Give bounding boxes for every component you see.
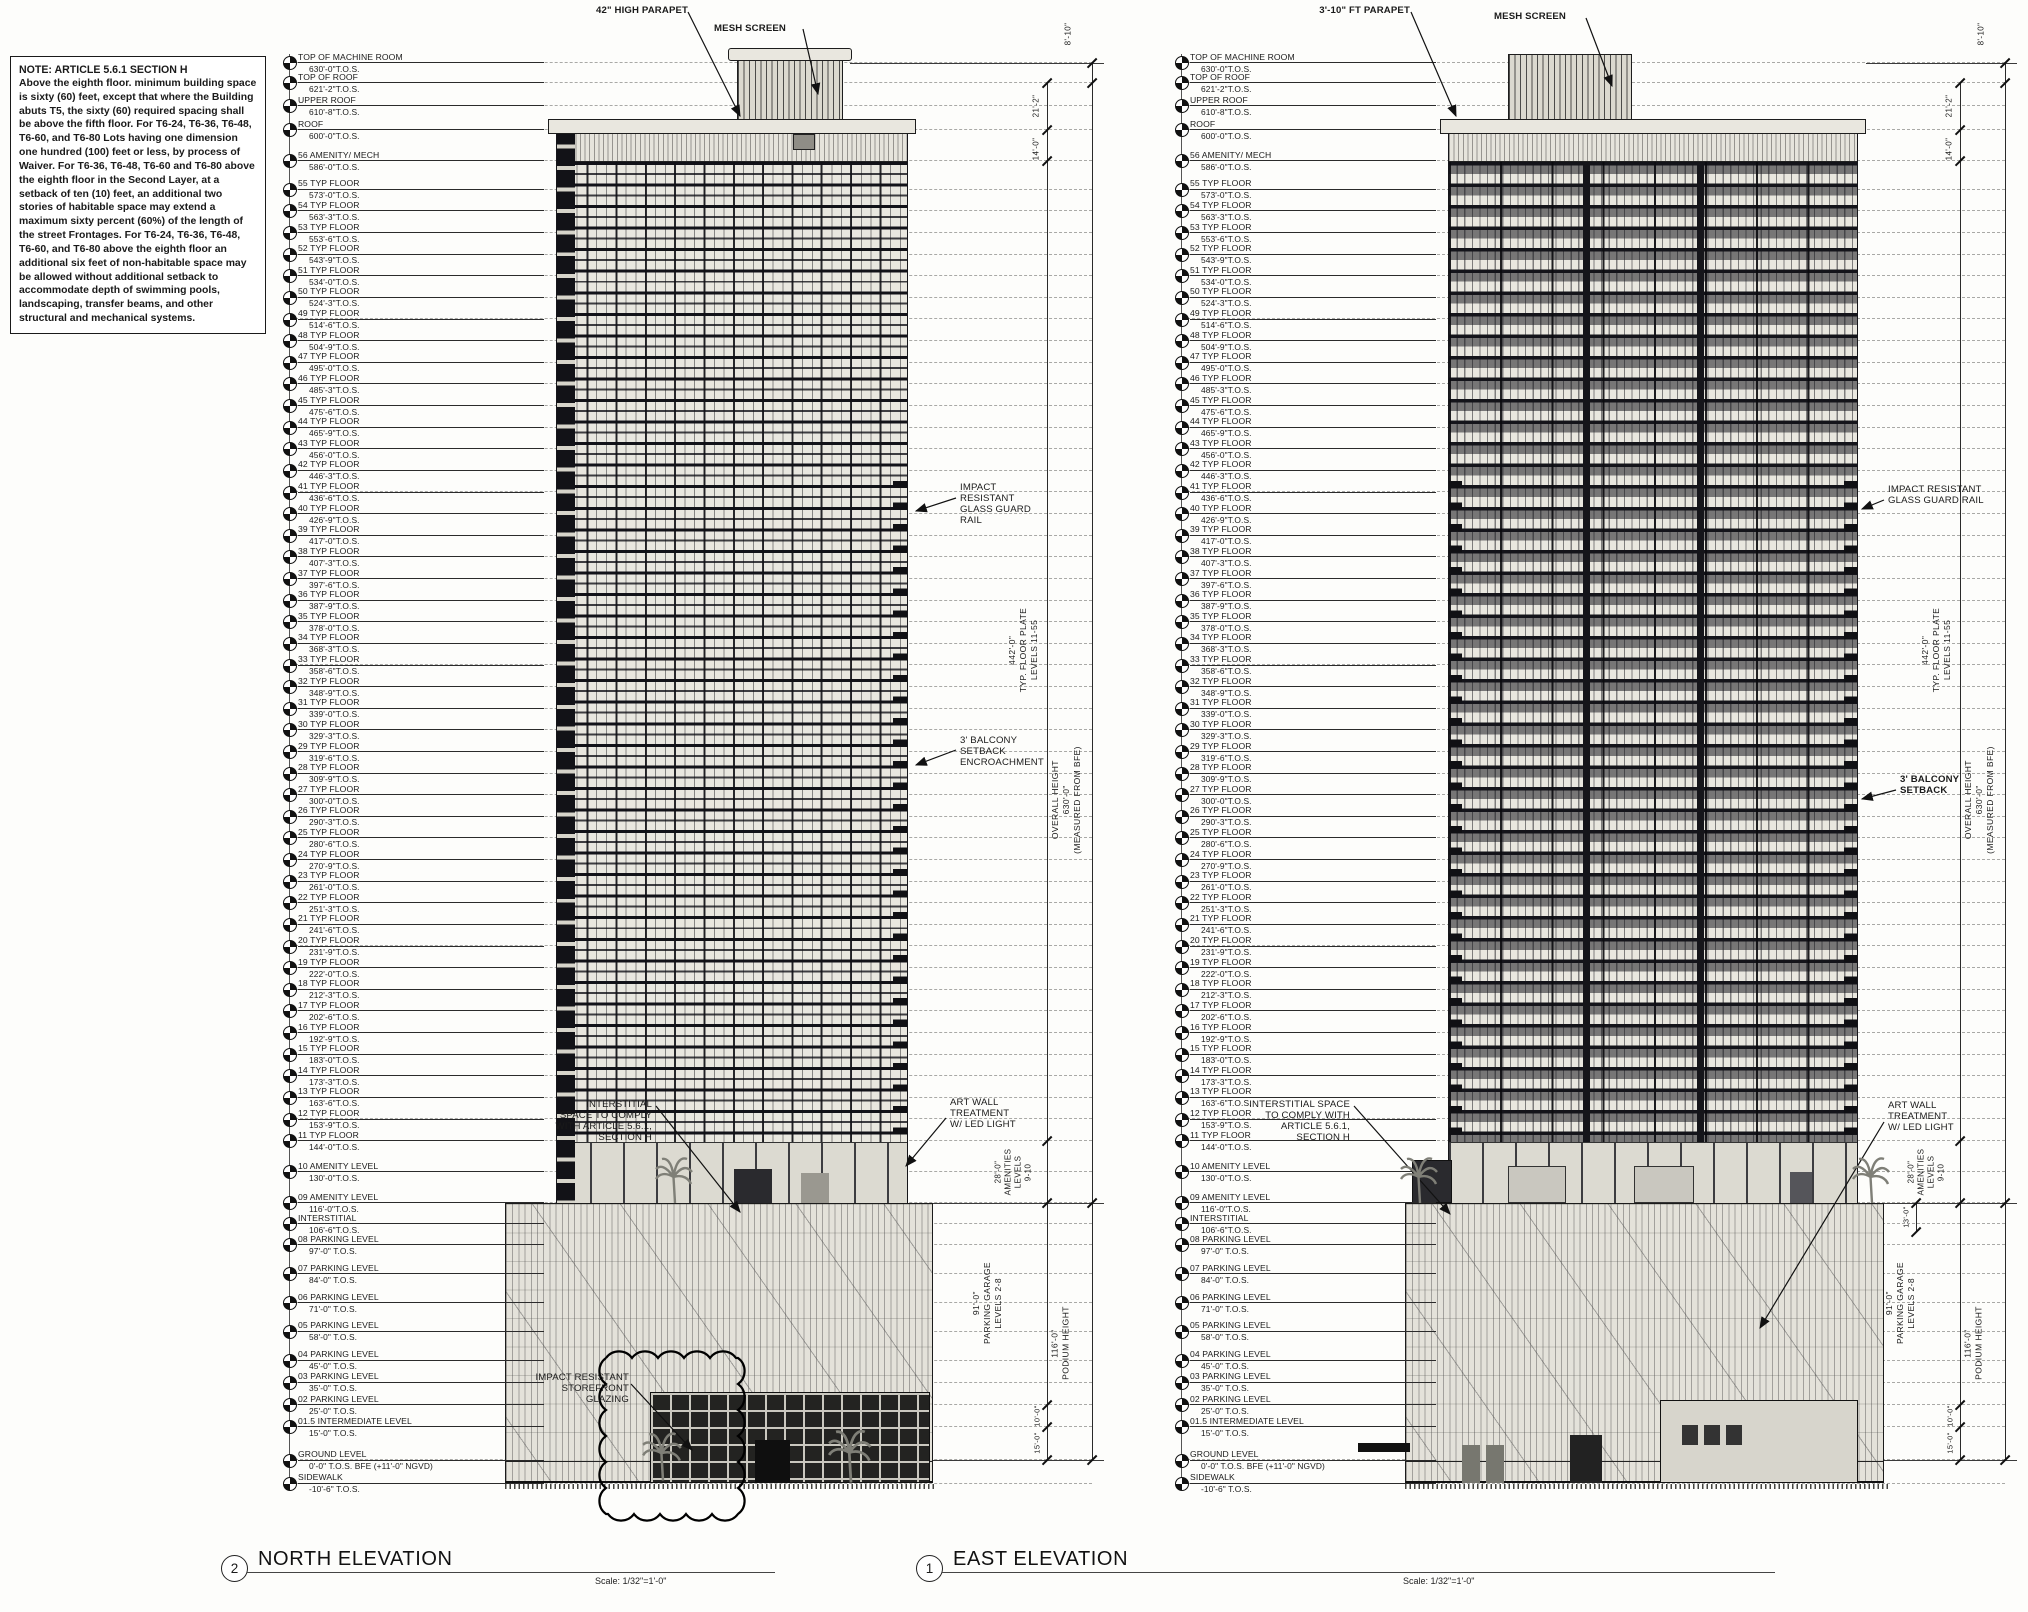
level-datum-icon — [1175, 810, 1189, 824]
north-mech-level — [557, 131, 907, 162]
annotation-east-art-wall: ART WALL TREATMENT W/ LED LIGHT — [1888, 1100, 1954, 1133]
level-row-north: TOP OF ROOF621'-2"T.O.S. — [283, 69, 553, 95]
dimension-text-block: 28'-0"AMENITIESLEVELS9-10 — [1907, 1149, 1946, 1196]
level-datum-icon — [283, 550, 297, 564]
dimension-text: LEVELS — [1927, 1156, 1936, 1189]
dimension-text: 9-10 — [1024, 1163, 1033, 1181]
level-datum-icon — [283, 637, 297, 651]
level-datum-icon — [1175, 1238, 1189, 1252]
level-name: 21 TYP FLOOR — [298, 913, 360, 923]
dimension-text: 8'-10" — [1977, 23, 1986, 46]
level-datum-icon — [1175, 334, 1189, 348]
level-datum-icon — [283, 99, 297, 113]
level-datum-icon — [1175, 399, 1189, 413]
north-entry-door — [755, 1440, 790, 1483]
level-row-north: ROOF600'-0"T.O.S. — [283, 116, 553, 142]
dimension-text-block: 28'-0"AMENITIESLEVELS9-10 — [994, 1149, 1033, 1196]
level-name: 13 TYP FLOOR — [1190, 1086, 1252, 1096]
dimension-text: TYP. FLOOR PLATE — [1018, 608, 1028, 693]
level-datum-icon — [1175, 550, 1189, 564]
level-name: 14 TYP FLOOR — [1190, 1065, 1252, 1075]
level-name: 37 TYP FLOOR — [1190, 568, 1252, 578]
level-name: 04 PARKING LEVEL — [298, 1349, 379, 1359]
level-name: TOP OF ROOF — [298, 72, 358, 82]
level-datum-icon — [1175, 572, 1189, 586]
level-name: 46 TYP FLOOR — [298, 373, 360, 383]
level-datum-icon — [1175, 291, 1189, 305]
level-datum-icon — [283, 659, 297, 673]
north-roof-slab — [548, 119, 916, 134]
level-datum-icon — [1175, 940, 1189, 954]
level-datum-icon — [283, 313, 297, 327]
level-name: 09 AMENITY LEVEL — [298, 1192, 378, 1202]
dimension-text: AMENITIES — [1004, 1149, 1013, 1196]
level-datum-icon — [1175, 1165, 1189, 1179]
level-datum-icon — [1175, 875, 1189, 889]
dimension-text: PARKING GARAGE — [1895, 1262, 1905, 1344]
level-datum-icon — [283, 1477, 297, 1491]
level-row-north: GROUND LEVEL0'-0" T.O.S. BFE (+11'-0" NG… — [283, 1446, 553, 1472]
leader-line — [916, 750, 956, 765]
level-name: 16 TYP FLOOR — [298, 1022, 360, 1032]
level-datum-icon — [1175, 1398, 1189, 1412]
level-name: 20 TYP FLOOR — [298, 935, 360, 945]
level-datum-icon — [1175, 918, 1189, 932]
level-elevation: 144'-0"T.O.S. — [309, 1142, 360, 1152]
north-elevation-title: NORTH ELEVATION — [258, 1548, 453, 1571]
level-datum-icon — [1175, 269, 1189, 283]
level-row-east: 10 AMENITY LEVEL130'-0"T.O.S. — [1175, 1158, 1445, 1184]
level-name: 53 TYP FLOOR — [298, 222, 360, 232]
level-name: 29 TYP FLOOR — [1190, 741, 1252, 751]
level-datum-icon — [1175, 1325, 1189, 1339]
level-datum-icon — [1175, 226, 1189, 240]
level-row-east: 01.5 INTERMEDIATE LEVEL15'-0" T.O.S. — [1175, 1413, 1445, 1439]
dimension-text: 21'-2" — [1032, 95, 1041, 118]
east-balcony-edge-left — [1449, 481, 1462, 1142]
level-name: 22 TYP FLOOR — [298, 892, 360, 902]
level-name: 31 TYP FLOOR — [298, 697, 360, 707]
level-name: 44 TYP FLOOR — [298, 416, 360, 426]
level-name: 35 TYP FLOOR — [298, 611, 360, 621]
level-name: 08 PARKING LEVEL — [298, 1234, 379, 1244]
level-name: INTERSTITIAL — [298, 1213, 357, 1223]
level-datum-icon — [1175, 767, 1189, 781]
east-roof-amenity-box — [1508, 1166, 1566, 1203]
level-datum-icon — [283, 1134, 297, 1148]
level-datum-icon — [283, 918, 297, 932]
level-datum-icon — [283, 1267, 297, 1281]
level-name: 06 PARKING LEVEL — [298, 1292, 379, 1302]
east-entry — [1570, 1435, 1602, 1483]
north-sidewalk-hatch — [505, 1484, 937, 1489]
dimension-text-block: 15'-0" — [1033, 1433, 1042, 1455]
level-name: 51 TYP FLOOR — [298, 265, 360, 275]
level-row-east: 05 PARKING LEVEL58'-0" T.O.S. — [1175, 1317, 1445, 1343]
east-facade-grid — [1449, 162, 1857, 1142]
level-name: INTERSTITIAL — [1190, 1213, 1249, 1223]
level-name: 25 TYP FLOOR — [298, 827, 360, 837]
level-datum-icon — [1175, 1454, 1189, 1468]
level-elevation: 130'-0"T.O.S. — [1201, 1173, 1252, 1183]
level-name: 33 TYP FLOOR — [1190, 654, 1252, 664]
dimension-text: 28'-0" — [994, 1161, 1003, 1184]
dimension-text: PODIUM HEIGHT — [1061, 1306, 1071, 1380]
level-datum-icon — [1175, 723, 1189, 737]
level-datum-icon — [283, 983, 297, 997]
level-datum-icon — [1175, 853, 1189, 867]
level-datum-icon — [1175, 1004, 1189, 1018]
level-row-east: 06 PARKING LEVEL71'-0" T.O.S. — [1175, 1289, 1445, 1315]
level-name: 24 TYP FLOOR — [1190, 849, 1252, 859]
east-door — [1462, 1445, 1480, 1483]
level-datum-icon — [1175, 464, 1189, 478]
level-datum-icon — [1175, 745, 1189, 759]
level-datum-icon — [283, 269, 297, 283]
north-storefront — [650, 1392, 930, 1483]
level-datum-icon — [283, 875, 297, 889]
dimension-text: 442'-0" — [1920, 635, 1930, 664]
note-title: NOTE: ARTICLE 5.6.1 SECTION H — [19, 64, 257, 76]
level-datum-icon — [283, 702, 297, 716]
level-datum-icon — [283, 486, 297, 500]
level-name: 24 TYP FLOOR — [298, 849, 360, 859]
extension-line — [1884, 1460, 2017, 1461]
level-elevation: 144'-0"T.O.S. — [1201, 1142, 1252, 1152]
level-datum-icon — [1175, 615, 1189, 629]
level-name: 23 TYP FLOOR — [1190, 870, 1252, 880]
leader-line — [906, 1118, 946, 1166]
level-datum-icon — [283, 940, 297, 954]
level-name: 27 TYP FLOOR — [298, 784, 360, 794]
extension-line — [1884, 1203, 2017, 1204]
level-datum-icon — [1175, 680, 1189, 694]
east-facade-mullion-strip — [1583, 162, 1590, 1142]
outer-dimension-line — [2005, 63, 2006, 1460]
north-facade-grid — [557, 162, 907, 1142]
dimension-text: 15'-0" — [1033, 1433, 1042, 1455]
level-row-east: 56 AMENITY/ MECH586'-0"T.O.S. — [1175, 147, 1445, 173]
level-row-north: 07 PARKING LEVEL84'-0" T.O.S. — [283, 1260, 553, 1286]
dimension-text: LEVELS 11-55 — [1942, 620, 1952, 680]
extension-line — [933, 1460, 1104, 1461]
level-name: 35 TYP FLOOR — [1190, 611, 1252, 621]
level-name: 31 TYP FLOOR — [1190, 697, 1252, 707]
level-name: 50 TYP FLOOR — [1190, 286, 1252, 296]
level-datum-icon — [283, 1069, 297, 1083]
level-name: 41 TYP FLOOR — [298, 481, 360, 491]
dimension-text: 13'-0" — [1902, 1206, 1911, 1228]
dimension-text: 9-10 — [1937, 1163, 1946, 1181]
dimension-text: PODIUM HEIGHT — [1974, 1306, 1984, 1380]
level-name: 56 AMENITY/ MECH — [1190, 150, 1271, 160]
level-datum-icon — [1175, 507, 1189, 521]
level-name: 48 TYP FLOOR — [1190, 330, 1252, 340]
dimension-text-block: 8'-10" — [1977, 23, 1986, 46]
level-name: GROUND LEVEL — [1190, 1449, 1259, 1459]
level-name: 33 TYP FLOOR — [298, 654, 360, 664]
level-row-north: 10 AMENITY LEVEL130'-0"T.O.S. — [283, 1158, 553, 1184]
north-roof-access — [793, 134, 815, 150]
level-datum-icon — [1175, 831, 1189, 845]
palm-tree — [1853, 1158, 1889, 1203]
east-window-box — [1704, 1425, 1720, 1445]
level-datum-icon — [1175, 1026, 1189, 1040]
dimension-text: 116'-0" — [1963, 1329, 1973, 1358]
dimension-text: 8'-10" — [1064, 23, 1073, 46]
annotation-north-parapet: 42" HIGH PARAPET — [596, 5, 688, 16]
level-name: 38 TYP FLOOR — [298, 546, 360, 556]
level-datum-icon — [1175, 1134, 1189, 1148]
level-datum-icon — [1175, 961, 1189, 975]
level-name: 10 AMENITY LEVEL — [1190, 1161, 1270, 1171]
level-name: TOP OF ROOF — [1190, 72, 1250, 82]
level-name: 42 TYP FLOOR — [1190, 459, 1252, 469]
level-datum-icon — [283, 1376, 297, 1390]
dimension-text: LEVELS 11-55 — [1029, 620, 1039, 680]
level-row-north: 05 PARKING LEVEL58'-0" T.O.S. — [283, 1317, 553, 1343]
level-datum-icon — [283, 399, 297, 413]
level-name: 20 TYP FLOOR — [1190, 935, 1252, 945]
level-datum-icon — [1175, 1376, 1189, 1390]
dimension-text: OVERALL HEIGHT — [1050, 761, 1060, 840]
annotation-north-glass-guard-rail: IMPACT RESISTANT GLASS GUARD RAIL — [960, 482, 1031, 526]
east-sidewalk-hatch — [1405, 1484, 1888, 1489]
level-datum-icon — [283, 1004, 297, 1018]
level-datum-icon — [283, 464, 297, 478]
level-row-north: 01.5 INTERMEDIATE LEVEL15'-0" T.O.S. — [283, 1413, 553, 1439]
annotation-north-balcony-setback: 3' BALCONY SETBACK ENCROACHMENT — [960, 735, 1044, 768]
level-datum-icon — [283, 377, 297, 391]
level-name: 01.5 INTERMEDIATE LEVEL — [1190, 1416, 1304, 1426]
level-datum-icon — [283, 961, 297, 975]
level-row-east: SIDEWALK-10'-6" T.O.S. — [1175, 1469, 1445, 1495]
level-name: 05 PARKING LEVEL — [1190, 1320, 1271, 1330]
east-scale-text: Scale: 1/32"=1'-0" — [1403, 1576, 1474, 1586]
level-datum-icon — [1175, 99, 1189, 113]
level-datum-icon — [283, 1325, 297, 1339]
level-name: 02 PARKING LEVEL — [298, 1394, 379, 1404]
level-name: 44 TYP FLOOR — [1190, 416, 1252, 426]
dimension-text: 14'-0" — [1032, 138, 1041, 161]
level-datum-icon — [283, 248, 297, 262]
level-datum-icon — [1175, 486, 1189, 500]
east-elevation-title: EAST ELEVATION — [953, 1548, 1128, 1571]
annotation-north-art-wall: ART WALL TREATMENT W/ LED LIGHT — [950, 1097, 1016, 1130]
level-datum-icon — [1175, 313, 1189, 327]
east-balcony-edge-right — [1844, 481, 1857, 1142]
dimension-text: TYP. FLOOR PLATE — [1931, 608, 1941, 693]
level-name: TOP OF MACHINE ROOM — [1190, 52, 1295, 62]
small-dimension-line — [1916, 1203, 1917, 1232]
level-name: 17 TYP FLOOR — [298, 1000, 360, 1010]
dimension-text-block: 10'-0" — [1033, 1405, 1042, 1427]
level-datum-icon — [283, 745, 297, 759]
level-datum-icon — [283, 723, 297, 737]
level-datum-icon — [1175, 1196, 1189, 1210]
level-datum-icon — [1175, 1267, 1189, 1281]
level-row-east: TOP OF ROOF621'-2"T.O.S. — [1175, 69, 1445, 95]
level-name: 28 TYP FLOOR — [1190, 762, 1252, 772]
level-name: 15 TYP FLOOR — [298, 1043, 360, 1053]
level-elevation: 97'-0" T.O.S. — [309, 1246, 357, 1256]
east-detail-number: 1 — [916, 1555, 943, 1582]
level-datum-icon — [1175, 248, 1189, 262]
dimension-text-block: 21'-2" — [1945, 95, 1954, 118]
dimension-text: OVERALL HEIGHT — [1963, 761, 1973, 840]
dimension-text: 91'-0" — [971, 1291, 981, 1315]
level-datum-icon — [1175, 442, 1189, 456]
level-elevation: 586'-0"T.O.S. — [1201, 162, 1252, 172]
east-window-box — [1682, 1425, 1698, 1445]
level-name: 34 TYP FLOOR — [298, 632, 360, 642]
level-name: SIDEWALK — [298, 1472, 343, 1482]
level-name: 54 TYP FLOOR — [1190, 200, 1252, 210]
north-amenity-box — [734, 1169, 772, 1204]
level-datum-icon — [283, 1238, 297, 1252]
level-name: 36 TYP FLOOR — [298, 589, 360, 599]
level-datum-icon — [1175, 76, 1189, 90]
east-mesh-screen — [1508, 54, 1632, 120]
dimension-text: (MEASURED FROM BFE) — [1072, 746, 1082, 854]
level-name: 30 TYP FLOOR — [1190, 719, 1252, 729]
level-name: 41 TYP FLOOR — [1190, 481, 1252, 491]
dimension-text: 10'-0" — [1946, 1405, 1955, 1427]
level-datum-icon — [1175, 183, 1189, 197]
north-machine-room-mesh — [737, 58, 843, 120]
level-elevation: 15'-0" T.O.S. — [1201, 1428, 1249, 1438]
level-name: 49 TYP FLOOR — [1190, 308, 1252, 318]
east-facade-mullion-strip — [1697, 162, 1704, 1142]
level-elevation: 58'-0" T.O.S. — [309, 1332, 357, 1342]
leader-line — [1862, 500, 1884, 509]
level-datum-icon — [1175, 204, 1189, 218]
dimension-text: PARKING GARAGE — [982, 1262, 992, 1344]
level-name: 07 PARKING LEVEL — [298, 1263, 379, 1273]
north-amenity-box — [801, 1173, 829, 1204]
level-elevation: 84'-0" T.O.S. — [309, 1275, 357, 1285]
level-name: 32 TYP FLOOR — [1190, 676, 1252, 686]
level-name: 45 TYP FLOOR — [298, 395, 360, 405]
level-datum-icon — [1175, 1420, 1189, 1434]
level-name: 02 PARKING LEVEL — [1190, 1394, 1271, 1404]
level-elevation: 586'-0"T.O.S. — [309, 162, 360, 172]
level-datum-icon — [283, 183, 297, 197]
level-elevation: 71'-0" T.O.S. — [309, 1304, 357, 1314]
level-name: 40 TYP FLOOR — [1190, 503, 1252, 513]
level-elevation: 600'-0"T.O.S. — [1201, 131, 1252, 141]
level-name: 43 TYP FLOOR — [298, 438, 360, 448]
level-datum-icon — [283, 123, 297, 137]
level-datum-icon — [1175, 594, 1189, 608]
level-name: 38 TYP FLOOR — [1190, 546, 1252, 556]
annotation-east-glass-guard-rail: IMPACT RESISTANT GLASS GUARD RAIL — [1888, 484, 1984, 506]
east-roof-amenity-box — [1790, 1172, 1812, 1203]
annotation-east-balcony-setback: 3' BALCONY SETBACK — [1900, 774, 1959, 796]
level-name: 04 PARKING LEVEL — [1190, 1349, 1271, 1359]
level-datum-icon — [283, 680, 297, 694]
level-row-north: 08 PARKING LEVEL97'-0" T.O.S. — [283, 1231, 553, 1257]
dimension-text-block: OVERALL HEIGHT630'-0"(MEASURED FROM BFE) — [1963, 746, 1995, 854]
dimension-text-block: 15'-0" — [1946, 1433, 1955, 1455]
level-name: UPPER ROOF — [298, 95, 356, 105]
north-parapet-cap — [728, 48, 852, 61]
level-datum-icon — [283, 356, 297, 370]
level-datum-icon — [283, 1296, 297, 1310]
level-datum-icon — [283, 1196, 297, 1210]
level-name: UPPER ROOF — [1190, 95, 1248, 105]
dimension-text: 91'-0" — [1884, 1291, 1894, 1315]
level-datum-icon — [283, 788, 297, 802]
level-datum-icon — [1175, 1048, 1189, 1062]
level-name: 39 TYP FLOOR — [298, 524, 360, 534]
extension-line — [850, 63, 1104, 64]
dimension-text-block: 442'-0"TYP. FLOOR PLATELEVELS 11-55 — [1007, 608, 1039, 693]
level-elevation: 84'-0" T.O.S. — [1201, 1275, 1249, 1285]
dimension-text-block: 13'-0" — [1902, 1206, 1911, 1228]
level-datum-icon — [1175, 154, 1189, 168]
north-title-line — [247, 1572, 775, 1573]
note-body: Above the eighth floor. minimum building… — [19, 77, 257, 326]
dimension-text-block: 10'-0" — [1946, 1405, 1955, 1427]
level-datum-icon — [283, 442, 297, 456]
level-datum-icon — [1175, 1217, 1189, 1231]
level-name: 49 TYP FLOOR — [298, 308, 360, 318]
level-name: 46 TYP FLOOR — [1190, 373, 1252, 383]
dimension-text-block: 91'-0"PARKING GARAGELEVELS 2-8 — [1884, 1262, 1916, 1344]
level-name: GROUND LEVEL — [298, 1449, 367, 1459]
level-datum-icon — [283, 1113, 297, 1127]
dimension-text-block: 14'-0" — [1945, 138, 1954, 161]
dimension-text-block: 116'-0"PODIUM HEIGHT — [1963, 1306, 1984, 1380]
level-datum-icon — [1175, 659, 1189, 673]
level-name: 55 TYP FLOOR — [298, 178, 360, 188]
level-name: 53 TYP FLOOR — [1190, 222, 1252, 232]
level-name: 32 TYP FLOOR — [298, 676, 360, 686]
annotation-north-mesh-screen: MESH SCREEN — [714, 23, 786, 34]
level-datum-icon — [1175, 377, 1189, 391]
level-name: 11 TYP FLOOR — [298, 1130, 359, 1140]
north-balcony-edge — [893, 481, 907, 1142]
annotation-east-interstitial: INTERSTITIAL SPACE TO COMPLY WITH ARTICL… — [1204, 1099, 1350, 1143]
level-datum-icon — [283, 1165, 297, 1179]
level-name: 34 TYP FLOOR — [1190, 632, 1252, 642]
level-datum-icon — [283, 421, 297, 435]
dimension-text-block: 91'-0"PARKING GARAGELEVELS 2-8 — [971, 1262, 1003, 1344]
extension-line — [1866, 63, 2017, 64]
level-datum-icon — [283, 1354, 297, 1368]
east-mech-level — [1449, 131, 1857, 162]
level-name: 43 TYP FLOOR — [1190, 438, 1252, 448]
level-datum-icon — [1175, 788, 1189, 802]
level-row-east: 07 PARKING LEVEL84'-0" T.O.S. — [1175, 1260, 1445, 1286]
north-scale-text: Scale: 1/32"=1'-0" — [595, 1576, 666, 1586]
dimension-text: 630'-0" — [1974, 785, 1984, 814]
level-name: 18 TYP FLOOR — [1190, 978, 1252, 988]
dimension-text-block: 14'-0" — [1032, 138, 1041, 161]
level-name: 39 TYP FLOOR — [1190, 524, 1252, 534]
level-datum-icon — [283, 1048, 297, 1062]
level-name: 54 TYP FLOOR — [298, 200, 360, 210]
level-name: 17 TYP FLOOR — [1190, 1000, 1252, 1010]
level-datum-icon — [283, 615, 297, 629]
level-name: 03 PARKING LEVEL — [1190, 1371, 1271, 1381]
annotation-east-mesh-screen: MESH SCREEN — [1494, 11, 1566, 22]
level-row-east: GROUND LEVEL0'-0" T.O.S. BFE (+11'-0" NG… — [1175, 1446, 1445, 1472]
east-door — [1486, 1445, 1504, 1483]
level-elevation: 97'-0" T.O.S. — [1201, 1246, 1249, 1256]
level-datum-icon — [283, 1091, 297, 1105]
